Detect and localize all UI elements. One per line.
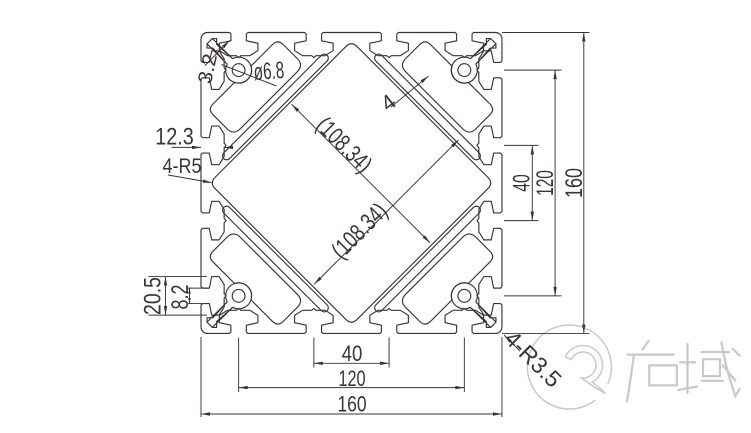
svg-text:160: 160 bbox=[337, 392, 366, 417]
svg-text:(108.34): (108.34) bbox=[311, 112, 377, 178]
svg-text:120: 120 bbox=[532, 170, 559, 196]
svg-text:(108.34): (108.34) bbox=[326, 198, 392, 264]
svg-text:12.3: 12.3 bbox=[155, 124, 194, 151]
svg-text:ø6.8: ø6.8 bbox=[253, 57, 285, 86]
svg-text:4-R3.5: 4-R3.5 bbox=[500, 325, 567, 392]
svg-text:4: 4 bbox=[376, 89, 401, 116]
svg-text:120: 120 bbox=[338, 366, 365, 391]
svg-text:8.2: 8.2 bbox=[167, 285, 194, 310]
svg-text:3.2: 3.2 bbox=[194, 52, 222, 86]
svg-text:40: 40 bbox=[342, 341, 363, 366]
svg-text:160: 160 bbox=[561, 168, 588, 198]
svg-text:4-R5: 4-R5 bbox=[163, 155, 202, 178]
svg-text:20.5: 20.5 bbox=[140, 277, 167, 315]
